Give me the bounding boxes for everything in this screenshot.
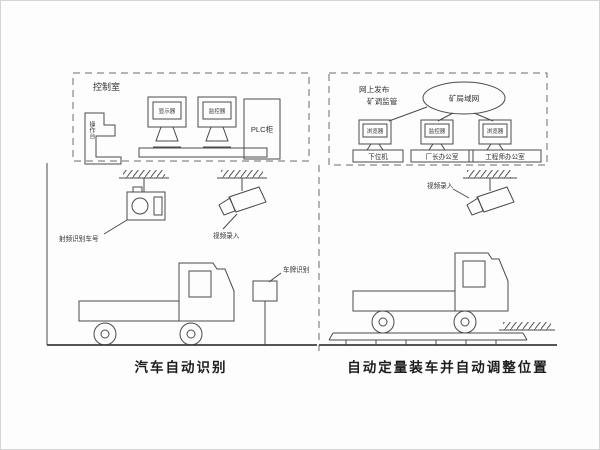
plate-box [253, 281, 277, 301]
monitor-1-stand [156, 127, 178, 141]
pc2-screen-label: 监控器 [429, 127, 446, 135]
rfid-leader-line [104, 220, 127, 234]
operator-console: 操作台 [85, 113, 121, 164]
pc2-caption: 厂长办公室 [426, 152, 459, 161]
rfid-reader-body [127, 192, 165, 220]
monitor-1-label: 显示器 [159, 108, 176, 115]
lan-cloud: 矿局域网 [423, 82, 505, 114]
plc-cabinet-label: PLC柜 [251, 124, 274, 134]
network-note-1: 网上发布 [359, 84, 390, 94]
left-camera: 视频录入 [213, 170, 267, 240]
pc-engineer-office: 浏览器 工程师办公室 [469, 120, 541, 162]
ground-edge [499, 322, 555, 330]
truck-wheel [454, 311, 476, 333]
pc1-screen-label: 浏览器 [367, 127, 384, 135]
monitor-2-stand [206, 127, 228, 141]
pc1-caption: 下位机 [368, 152, 388, 161]
rfid-reader: 射频识别车号 [59, 170, 169, 243]
system-diagram: 控制室 操作台 显示器 监控器 PLC柜 [1, 1, 599, 449]
truck-window [463, 261, 485, 287]
desk [139, 148, 267, 157]
truck-left [79, 263, 234, 345]
truck-window [189, 271, 211, 297]
pc-dispatch: 浏览器 下位机 [353, 120, 403, 162]
truck-cab [179, 263, 234, 321]
left-camera-label: 视频录入 [213, 231, 240, 240]
pc3-caption: 工程师办公室 [485, 152, 525, 161]
right-camera: 视频录入 [427, 170, 517, 215]
truck-wheel [372, 311, 394, 333]
plc-cabinet: PLC柜 [244, 99, 280, 159]
lan-cloud-label: 矿局域网 [449, 93, 479, 103]
truck-wheel [94, 323, 116, 345]
plate-recognition-post: 车牌识别 [253, 265, 310, 345]
rfid-label: 射频识别车号 [59, 234, 99, 243]
lan-link [389, 107, 427, 121]
monitor-2: 监控器 [198, 97, 236, 147]
control-room-title: 控制室 [93, 81, 120, 92]
monitor-2-label: 监控器 [209, 107, 226, 115]
ceiling-hatch [221, 170, 263, 178]
operator-console-label: 操作台 [88, 120, 95, 140]
pc-director-office: 监控器 厂长办公室 [411, 120, 473, 162]
truck-wheel [180, 323, 202, 345]
plate-label: 车牌识别 [283, 265, 310, 274]
camera-body [229, 187, 266, 212]
control-room: 控制室 操作台 显示器 监控器 PLC柜 [73, 73, 309, 164]
network-box: 网上发布 矿调监管 矿局域网 浏览器 下位机 监控器 厂长办公室 [329, 73, 547, 165]
left-section-caption: 汽车自动识别 [135, 359, 228, 375]
weighbridge [329, 333, 527, 345]
monitor-1: 显示器 [148, 97, 186, 147]
camera-body [477, 187, 514, 212]
camera-lens [219, 198, 235, 215]
identification-scene: 射频识别车号 视频录入 车牌识别 [47, 163, 317, 375]
ceiling-hatch [123, 170, 165, 178]
ceiling-hatch [467, 170, 511, 178]
rfid-reader-lens [132, 198, 148, 214]
pc3-screen-label: 浏览器 [487, 127, 504, 135]
truck-bed [79, 301, 179, 321]
right-section-caption: 自动定量装车并自动调整位置 [347, 359, 549, 375]
camera-leader-line [453, 189, 469, 198]
camera-lens [467, 198, 483, 215]
right-camera-label: 视频录入 [427, 181, 454, 190]
truck-right [353, 253, 508, 333]
loading-scene: 视频录入 [319, 170, 557, 375]
network-note-2: 矿调监管 [367, 96, 398, 106]
truck-bed [353, 291, 455, 311]
diagram-canvas: 控制室 操作台 显示器 监控器 PLC柜 [0, 0, 600, 450]
camera-leader-line [223, 214, 237, 229]
